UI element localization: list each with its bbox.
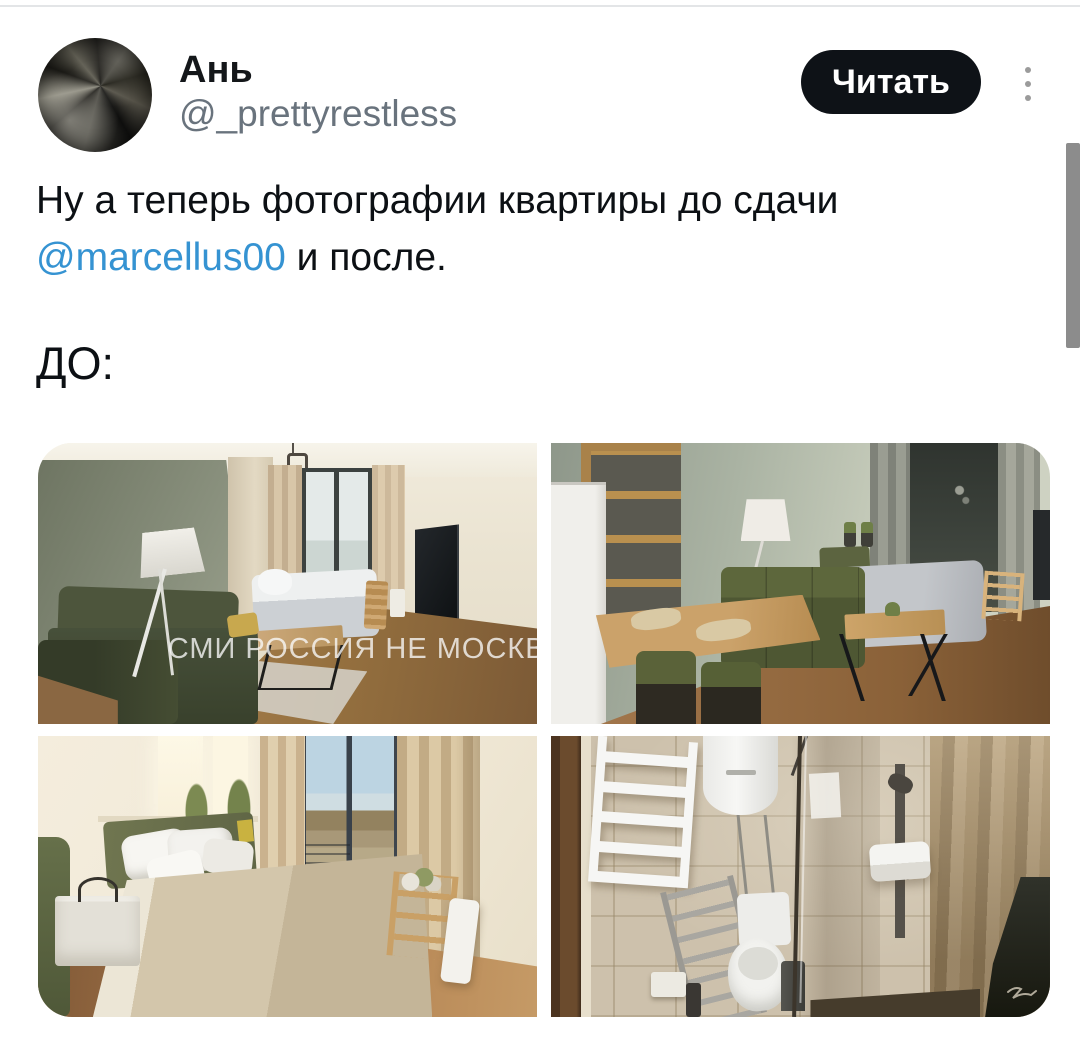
follow-button-label: Читать xyxy=(832,63,950,102)
tweet-photo-2[interactable] xyxy=(551,443,1050,724)
p4-shower-head xyxy=(885,771,915,797)
p3-plant xyxy=(183,778,210,817)
tweet-text: Ну а теперь фотографии квартиры до сдачи… xyxy=(36,172,976,286)
p1-heater-panel xyxy=(390,589,405,617)
p4-toilet-paper xyxy=(651,972,686,997)
p1-ladder-shelf xyxy=(364,580,389,629)
p2-ladder-shelf xyxy=(981,571,1024,621)
more-menu-icon[interactable] xyxy=(1008,56,1048,112)
tweet-photo-3[interactable] xyxy=(38,736,537,1017)
p3-plant xyxy=(225,773,252,815)
p1-bed-pillow xyxy=(258,569,293,594)
tweet-text-before: Ну а теперь фотографии квартиры до сдачи xyxy=(36,179,838,222)
p2-green-stool xyxy=(636,651,696,724)
photo-grid: СМИ РОССИЯ НЕ МОСКВА xyxy=(38,443,1050,1017)
tweet-photo-1[interactable]: СМИ РОССИЯ НЕ МОСКВА xyxy=(38,443,537,724)
avatar[interactable] xyxy=(38,38,152,152)
p3-flowers xyxy=(397,868,442,890)
follow-button[interactable]: Читать xyxy=(801,50,981,114)
author-name[interactable]: Ань xyxy=(179,50,253,90)
scrollbar-thumb[interactable] xyxy=(1066,143,1080,348)
top-divider xyxy=(0,5,1080,7)
p3-yellow-pillow xyxy=(236,820,253,844)
p3-wire-lamp xyxy=(78,877,118,902)
p2-table-plant xyxy=(885,602,900,616)
p4-toilet-brush xyxy=(686,983,701,1017)
p2-floor-lamp-shade xyxy=(741,499,791,541)
p4-hanging-towel xyxy=(809,772,841,818)
mention-link[interactable]: @marcellus00 xyxy=(36,236,286,279)
dot-icon xyxy=(1025,67,1031,73)
p1-floor-lamp-shade xyxy=(136,527,205,578)
p2-fridge xyxy=(551,482,606,724)
p2-tv-edge xyxy=(1033,510,1050,600)
dot-icon xyxy=(1025,95,1031,101)
p2-wall-planter xyxy=(861,522,872,547)
p3-nightstand xyxy=(55,896,140,966)
p4-heater-logo xyxy=(726,770,756,775)
p2-wall-planter xyxy=(844,522,855,547)
p4-pipes xyxy=(736,815,775,899)
author-handle[interactable]: @_prettyrestless xyxy=(179,94,457,134)
watermark-text: СМИ РОССИЯ НЕ МОСКВА xyxy=(168,633,537,666)
signature-mark xyxy=(1005,978,1039,1004)
p4-water-heater xyxy=(703,736,778,815)
p4-door xyxy=(551,736,581,1017)
section-label-before: ДО: xyxy=(36,338,114,390)
p4-towel-radiator xyxy=(588,736,698,888)
p4-sink-shelf xyxy=(869,841,931,882)
dot-icon xyxy=(1025,81,1031,87)
tweet-text-after: и после. xyxy=(286,236,447,279)
p2-green-stool xyxy=(701,662,761,724)
tweet-photo-4[interactable] xyxy=(551,736,1050,1017)
